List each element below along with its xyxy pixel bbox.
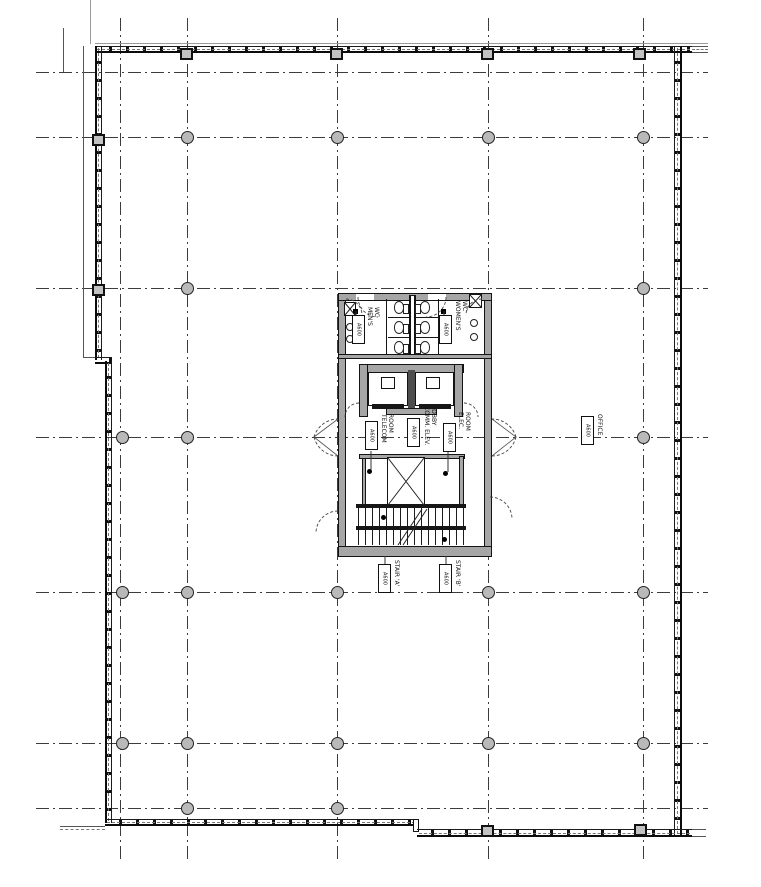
keynote-tag-womens-wc: A600 xyxy=(439,315,452,344)
keynote-tag-telecom: A600 xyxy=(365,421,378,450)
room-label-stair-b: STAIR 'B' xyxy=(454,560,461,586)
floor-plan-drawing: A600 MEN'S WC A600 WOMEN'S WC A600 TELEC… xyxy=(0,0,761,887)
keynote-tag-office: A600 xyxy=(581,416,594,445)
room-label-elec: ELEC. ROOM xyxy=(457,412,471,431)
room-label-lobby: COMM. ELEV. LOBBY xyxy=(423,406,437,445)
room-label-office: OFFICE xyxy=(596,414,603,435)
keynote-tag-elec: A600 xyxy=(443,423,456,452)
room-label-telecom: TELECOM ROOM xyxy=(380,414,394,443)
room-label-womens-wc: WOMEN'S WC xyxy=(454,301,468,331)
keynote-tag-mens-wc: A600 xyxy=(352,315,365,344)
room-label-stair-a: STAIR 'A' xyxy=(393,560,400,586)
keynote-tag-stair-a: A600 xyxy=(378,564,391,593)
room-label-mens-wc: MEN'S WC xyxy=(366,307,380,326)
keynote-tag-stair-b: A600 xyxy=(439,564,452,593)
keynote-tag-lobby: A600 xyxy=(407,418,420,447)
label-layer: A600 MEN'S WC A600 WOMEN'S WC A600 TELEC… xyxy=(0,0,761,887)
